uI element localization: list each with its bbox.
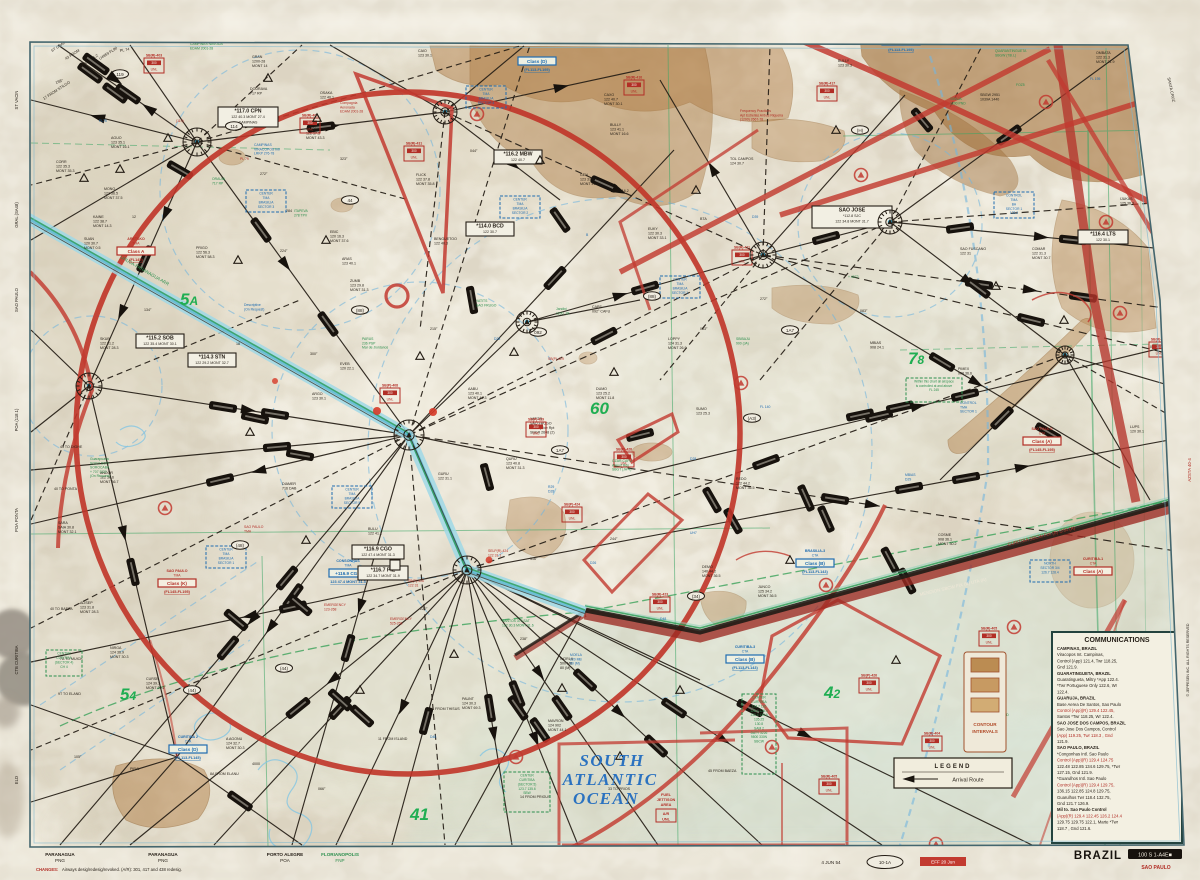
svg-text:123-268: 123-268 — [324, 607, 337, 611]
svg-text:D28: D28 — [548, 489, 554, 493]
svg-text:UNL: UNL — [411, 156, 418, 160]
svg-text:PAUNT: PAUNT — [462, 697, 475, 701]
svg-text:SAO PAULO: SAO PAULO — [1141, 865, 1170, 871]
svg-text:LUPS: LUPS — [1130, 425, 1140, 429]
svg-text:14 FROM THISUS: 14 FROM THISUS — [430, 707, 460, 711]
svg-text:MAVRON: MAVRON — [548, 719, 564, 723]
svg-text:AABU: AABU — [468, 387, 478, 391]
svg-text:UNL: UNL — [739, 260, 746, 264]
svg-text:123 30.1: 123 30.1 — [312, 397, 326, 401]
svg-text:EBIC: EBIC — [330, 230, 339, 234]
svg-text:QURU: QURU — [506, 457, 517, 461]
svg-text:MONT 36.5: MONT 36.5 — [758, 594, 777, 598]
svg-text:SB(R)-423: SB(R)-423 — [652, 593, 668, 597]
svg-text:122 40.3: 122 40.3 — [434, 242, 448, 246]
svg-text:123 47.4 MONT 31.3: 123 47.4 MONT 31.3 — [330, 580, 365, 584]
svg-text:300: 300 — [1156, 345, 1162, 349]
svg-text:114: 114 — [230, 124, 238, 129]
svg-text:UNL: UNL — [151, 68, 158, 72]
svg-text:FL 140: FL 140 — [760, 405, 771, 409]
svg-text:123.7 135.6: 123.7 135.6 — [518, 787, 536, 791]
svg-text:12: 12 — [132, 215, 136, 219]
svg-text:122 31.2: 122 31.2 — [100, 342, 114, 346]
svg-text:SAO JOSE: SAO JOSE — [839, 208, 866, 214]
svg-text:9800 330N: 9800 330N — [751, 735, 768, 739]
svg-text:215°: 215° — [430, 327, 438, 331]
svg-text:125 34.2: 125 34.2 — [758, 590, 772, 594]
svg-text:JETTISON: JETTISON — [657, 798, 676, 802]
svg-text:Class (B): Class (B) — [735, 657, 755, 662]
svg-text:Guarulhos Twr 118.4 132.75,: Guarulhos Twr 118.4 132.75, — [1057, 795, 1111, 800]
svg-text:UNL: UNL — [929, 746, 936, 750]
svg-text:MONO: MONO — [104, 187, 115, 191]
svg-text:123.7 126: 123.7 126 — [752, 704, 767, 708]
svg-text:122.48 122.85 134.6 129.75, *T: 122.48 122.85 134.6 129.75, *Twr — [1057, 764, 1121, 769]
svg-text:SUMO: SUMO — [696, 407, 707, 411]
svg-text:SECTOR 3: SECTOR 3 — [258, 205, 275, 209]
svg-text:123 25.3: 123 25.3 — [696, 412, 710, 416]
svg-text:CENTER: CENTER — [345, 488, 359, 492]
svg-text:124 32.7: 124 32.7 — [226, 742, 240, 746]
svg-text:MONT 30.3: MONT 30.3 — [226, 746, 245, 750]
svg-text:044°: 044° — [470, 149, 478, 153]
svg-text:124 39.1: 124 39.1 — [146, 682, 160, 686]
svg-text:(On Request): (On Request) — [244, 307, 264, 311]
svg-text:CAIO: CAIO — [418, 49, 427, 53]
svg-text:CENTER: CENTER — [259, 192, 273, 196]
svg-text:278 TPV: 278 TPV — [294, 213, 308, 217]
svg-text:FL 245: FL 245 — [929, 388, 939, 392]
svg-text:122 40.7: 122 40.7 — [511, 158, 525, 162]
svg-text:ST VACIN: ST VACIN — [14, 91, 19, 110]
svg-text:4 JUN 54: 4 JUN 54 — [821, 860, 841, 865]
svg-text:SBCW: SBCW — [754, 740, 765, 744]
svg-text:MONT 35.3: MONT 35.3 — [56, 169, 75, 173]
svg-text:PORTO ALEGRE: PORTO ALEGRE — [267, 852, 304, 857]
svg-text:UNL: UNL — [307, 128, 314, 132]
svg-text:MONT 43.3: MONT 43.3 — [306, 136, 325, 140]
svg-text:TMA: TMA — [517, 202, 525, 206]
svg-text:092: 092 — [534, 330, 542, 335]
svg-text:123.2: 123.2 — [1010, 211, 1018, 215]
svg-text:80 (M): 80 (M) — [560, 666, 570, 670]
svg-text:SB(R)-403: SB(R)-403 — [146, 54, 162, 58]
svg-text:MONT 14: MONT 14 — [252, 64, 268, 68]
svg-text:BULLY: BULLY — [610, 123, 622, 127]
svg-text:TMA: TMA — [677, 282, 685, 286]
svg-text:(SECTOR 5): (SECTOR 5) — [518, 782, 537, 786]
svg-text:TMA: TMA — [263, 196, 271, 200]
svg-text:122 31: 122 31 — [960, 252, 971, 256]
svg-text:MONT 14.3: MONT 14.3 — [93, 224, 112, 228]
svg-text:122 44.2: 122 44.2 — [736, 482, 750, 486]
svg-text:136.15 122.85 124.8 129.75,: 136.15 122.85 124.8 129.75, — [1057, 789, 1111, 794]
svg-text:300: 300 — [631, 83, 637, 87]
svg-text:(FL113-FL143): (FL113-FL143) — [802, 570, 828, 574]
svg-text:119: 119 — [116, 72, 124, 77]
svg-text:CENTER: CENTER — [479, 88, 493, 92]
svg-text:MONT 16.1: MONT 16.1 — [111, 145, 130, 149]
svg-text:POA (118.1): POA (118.1) — [14, 408, 19, 431]
svg-text:SBGT (JA-4): SBGT (JA-4) — [612, 468, 631, 472]
svg-text:CORR: CORR — [56, 160, 67, 164]
svg-text:116.2: 116.2 — [620, 189, 629, 193]
svg-text:122 34.7 MONT 31.9: 122 34.7 MONT 31.9 — [366, 574, 400, 578]
svg-text:PL 79: PL 79 — [240, 157, 249, 161]
svg-text:PNG: PNG — [55, 858, 65, 863]
svg-text:TMA: TMA — [244, 529, 252, 533]
svg-text:Gnd 121.7 126.9.: Gnd 121.7 126.9. — [1057, 801, 1089, 806]
svg-text:123 35.1: 123 35.1 — [111, 141, 125, 145]
svg-text:124 902: 124 902 — [548, 724, 561, 728]
svg-text:CTB CURITIBA: CTB CURITIBA — [14, 645, 19, 674]
svg-text:40 TO BAEZA: 40 TO BAEZA — [50, 607, 73, 611]
svg-text:MBIAS: MBIAS — [870, 341, 882, 345]
svg-text:Sao Jose Dos Campos, Control: Sao Jose Dos Campos, Control — [1057, 727, 1116, 732]
svg-text:Viracopos Int. Campinas,: Viracopos Int. Campinas, — [1057, 652, 1104, 657]
svg-text:UNL: UNL — [826, 789, 833, 793]
svg-text:TOL CAMPOS: TOL CAMPOS — [730, 157, 754, 161]
svg-text:122 41.1: 122 41.1 — [368, 532, 382, 536]
svg-text:244°: 244° — [610, 537, 618, 541]
svg-text:Control (App) 121.4, Twr 118.2: Control (App) 121.4, Twr 118.25, — [1057, 658, 1117, 663]
svg-text:11 FROM ISLAND: 11 FROM ISLAND — [378, 737, 408, 741]
svg-text:EDAM 2001-28: EDAM 2001-28 — [340, 110, 363, 114]
svg-text:MONT 26.9: MONT 26.9 — [668, 346, 687, 350]
svg-text:122 31: 122 31 — [408, 583, 418, 587]
svg-text:POA: POA — [280, 858, 291, 863]
svg-text:FNP: FNP — [335, 858, 344, 863]
svg-text:130.8: 130.8 — [755, 722, 763, 726]
svg-text:UNL: UNL — [631, 90, 638, 94]
svg-text:CH 4: CH 4 — [60, 665, 68, 669]
svg-text:D39: D39 — [752, 215, 758, 219]
svg-text:PIMEX: PIMEX — [958, 367, 970, 371]
svg-text:BRAZIL: BRAZIL — [1074, 850, 1122, 862]
svg-text:120 16.3: 120 16.3 — [330, 235, 344, 239]
svg-text:*115.2 SOB: *115.2 SOB — [146, 336, 174, 342]
svg-text:SECTOR 1: SECTOR 1 — [1006, 207, 1023, 211]
svg-text:SB(R)-411: SB(R)-411 — [734, 246, 750, 250]
svg-text:1200 PND: 1200 PND — [950, 101, 966, 105]
svg-text:083°: 083° — [700, 327, 708, 331]
svg-text:9T TO ELAND: 9T TO ELAND — [58, 692, 81, 696]
svg-text:Control (App)(R) 129.4 122.45,: Control (App)(R) 129.4 122.45, — [1057, 708, 1115, 713]
svg-text:CONSONHAS: CONSONHAS — [336, 559, 360, 563]
svg-text:300°: 300° — [310, 352, 318, 356]
svg-text:BRASILIA: BRASILIA — [479, 96, 495, 100]
svg-text:MONT 44.1: MONT 44.1 — [548, 728, 567, 732]
svg-text:(A3): (A3) — [748, 416, 757, 421]
svg-text:PRIGO: PRIGO — [196, 246, 208, 250]
svg-text:SKUB: SKUB — [100, 337, 110, 341]
svg-text:122 35.3: 122 35.3 — [56, 165, 70, 169]
svg-text:120 30.1: 120 30.1 — [1130, 430, 1144, 434]
svg-text:123 36.5: 123 36.5 — [104, 192, 118, 196]
svg-text:*Congonhas Intl. Sao Paulo: *Congonhas Intl. Sao Paulo — [1057, 751, 1109, 756]
svg-text:Class (D): Class (D) — [527, 59, 547, 64]
svg-text:300: 300 — [986, 634, 992, 638]
svg-text:SECTOR 4: SECTOR 4 — [478, 101, 495, 105]
svg-text:124 30.3: 124 30.3 — [462, 702, 476, 706]
svg-text:UNL: UNL — [657, 607, 664, 611]
svg-text:135.25: 135.25 — [754, 718, 764, 722]
svg-text:123 30.3: 123 30.3 — [838, 64, 852, 68]
svg-text:Class (A): Class (A) — [1083, 569, 1103, 574]
svg-text:300: 300 — [866, 681, 872, 685]
svg-text:122 37.8: 122 37.8 — [416, 178, 430, 182]
svg-text:BH: BH — [1012, 202, 1017, 206]
svg-text:908 36.6: 908 36.6 — [958, 372, 972, 376]
svg-text:CENTER: CENTER — [752, 696, 766, 700]
svg-text:123 40.1: 123 40.1 — [342, 262, 356, 266]
svg-text:122 30.7: 122 30.7 — [483, 230, 497, 234]
svg-text:UNL: UNL — [533, 432, 540, 436]
svg-text:123 40.1: 123 40.1 — [468, 392, 482, 396]
svg-text:(1200) 2667-78: (1200) 2667-78 — [740, 118, 763, 122]
svg-text:(FL145): (FL145) — [129, 258, 143, 262]
svg-text:60: 60 — [590, 399, 609, 418]
svg-text:MONT 41.3: MONT 41.3 — [468, 396, 487, 400]
svg-text:SAM 2: SAM 2 — [754, 726, 764, 730]
svg-text:IJUKAS: IJUKAS — [1120, 197, 1133, 201]
svg-text:MONT 28.3: MONT 28.3 — [80, 610, 99, 614]
svg-text:10-1A: 10-1A — [879, 860, 892, 865]
svg-text:272°: 272° — [260, 172, 268, 176]
svg-text:ALISEP: ALISEP — [80, 601, 93, 605]
svg-text:105°: 105° — [74, 755, 82, 759]
svg-text:(34): (34) — [692, 594, 701, 599]
svg-text:SAO PAULO, BRAZIL: SAO PAULO, BRAZIL — [1057, 745, 1100, 750]
svg-text:SECTOR 1: SECTOR 1 — [218, 561, 235, 565]
svg-text:SB(R)-431: SB(R)-431 — [406, 142, 422, 146]
svg-text:FOZ5: FOZ5 — [1016, 83, 1025, 87]
svg-text:SAO JOSE DOS CAMPOS, BRAZIL: SAO JOSE DOS CAMPOS, BRAZIL — [1057, 720, 1126, 725]
svg-text:717 RP: 717 RP — [250, 92, 263, 96]
svg-text:300: 300 — [533, 425, 539, 429]
svg-text:A/R: A/R — [663, 812, 670, 816]
svg-text:122 30.1: 122 30.1 — [1096, 238, 1110, 242]
svg-text:OSAKA: OSAKA — [320, 91, 333, 95]
svg-text:716 DAB: 716 DAB — [282, 487, 297, 491]
svg-text:122 35.4 MONT 30.1: 122 35.4 MONT 30.1 — [143, 342, 177, 346]
svg-text:D28: D28 — [690, 457, 696, 461]
svg-text:JUNCO: JUNCO — [758, 585, 771, 589]
svg-text:(H): (H) — [857, 128, 864, 133]
svg-text:(FL113-FL145): (FL113-FL145) — [175, 756, 201, 760]
svg-text:BULLY: BULLY — [838, 59, 850, 63]
svg-text:132.4 135.6: 132.4 135.6 — [750, 713, 768, 717]
svg-text:COMMUNICATIONS: COMMUNICATIONS — [1084, 637, 1150, 644]
svg-text:122 40.7: 122 40.7 — [604, 98, 618, 102]
svg-text:POA PONTA: POA PONTA — [14, 508, 19, 532]
svg-text:Class A: Class A — [128, 249, 145, 254]
svg-text:CENTER: CENTER — [673, 278, 687, 282]
svg-text:CENTER: CENTER — [219, 548, 233, 552]
svg-text:CENTER: CENTER — [57, 652, 71, 656]
svg-text:UNL: UNL — [986, 641, 993, 645]
svg-text:SUAN: SUAN — [84, 237, 94, 241]
svg-text:+116.9 CGO: +116.9 CGO — [335, 571, 361, 576]
svg-text:AZSTA 40-4: AZSTA 40-4 — [1187, 458, 1192, 482]
svg-text:127.15, Gnd 121.9.: 127.15, Gnd 121.9. — [1057, 770, 1093, 775]
svg-text:SAO PAULO: SAO PAULO — [166, 569, 187, 573]
svg-text:44: 44 — [347, 198, 353, 203]
svg-text:MONT 30.2: MONT 30.2 — [938, 542, 957, 546]
svg-text:TMA: TMA — [173, 574, 181, 578]
svg-text:300: 300 — [657, 600, 663, 604]
svg-text:MONT 29.2: MONT 29.2 — [146, 686, 165, 690]
svg-text:Mar de Jiordanos: Mar de Jiordanos — [362, 346, 389, 350]
svg-text:118.7 , Gnd 121.6.: 118.7 , Gnd 121.6. — [1057, 826, 1091, 831]
svg-text:A AGONU: A AGONU — [226, 737, 243, 741]
svg-text:TMA: TMA — [344, 564, 352, 568]
svg-text:122 40.1: 122 40.1 — [320, 96, 334, 100]
svg-text:100 S 1-A4E■: 100 S 1-A4E■ — [1138, 853, 1172, 859]
svg-text:ELD: ELD — [14, 776, 19, 784]
svg-text:1200-28: 1200-28 — [252, 60, 265, 64]
svg-text:MONT 41.5: MONT 41.5 — [580, 182, 599, 186]
svg-text:(FL145-FL195): (FL145-FL195) — [164, 590, 190, 594]
svg-text:123 40.8: 123 40.8 — [506, 462, 520, 466]
svg-text:UNL: UNL — [569, 517, 576, 521]
svg-text:SB(P)-428: SB(P)-428 — [616, 448, 632, 452]
svg-text:*Twr Portuguese Only 122.6, Wr: *Twr Portuguese Only 122.6, Wr — [1057, 683, 1118, 688]
svg-text:122 30.3: 122 30.3 — [648, 232, 662, 236]
svg-text:(App) 119.25, Twr 118.3 , Gnd: (App) 119.25, Twr 118.3 , Gnd — [1057, 733, 1113, 738]
svg-text:UNL: UNL — [662, 818, 670, 822]
svg-text:D26: D26 — [590, 561, 596, 565]
svg-text:MONT 69.3: MONT 69.3 — [462, 706, 481, 710]
svg-text:MONT 31.9: MONT 31.9 — [1096, 60, 1115, 64]
svg-text:(44): (44) — [280, 666, 289, 671]
svg-text:122 31.3: 122 31.3 — [1096, 56, 1110, 60]
svg-text:122 34.8 MONT 31.7: 122 34.8 MONT 31.7 — [835, 219, 869, 223]
svg-text:8A FROM ELANU: 8A FROM ELANU — [210, 772, 239, 776]
svg-text:ARAS: ARAS — [342, 257, 352, 261]
svg-text:SB(P)-426: SB(P)-426 — [861, 674, 877, 678]
svg-text:PARANAGUA: PARANAGUA — [45, 852, 75, 857]
svg-text:FUEL: FUEL — [661, 793, 672, 797]
svg-text:Base Aerea De Santos, Sao Paul: Base Aerea De Santos, Sao Paulo — [1057, 702, 1122, 707]
svg-text:MONT 31.3: MONT 31.3 — [506, 466, 525, 470]
svg-text:SECTOR 2: SECTOR 2 — [512, 211, 529, 215]
svg-text:(SECTOR 4): (SECTOR 4) — [55, 660, 74, 664]
svg-text:908 36.1: 908 36.1 — [938, 538, 952, 542]
svg-text:122 47.4 MONT 31.3: 122 47.4 MONT 31.3 — [361, 553, 395, 557]
svg-text:BRASILIA-3: BRASILIA-3 — [805, 549, 825, 553]
svg-text:FLICK: FLICK — [416, 173, 427, 177]
svg-text:REDO: REDO — [736, 477, 747, 481]
svg-text:DIAMER: DIAMER — [282, 482, 296, 486]
svg-text:UNL: UNL — [1156, 352, 1163, 356]
svg-text:CHANGES:: CHANGES: — [36, 867, 58, 872]
svg-text:CTA: CTA — [812, 554, 819, 558]
svg-text:908 24.1: 908 24.1 — [870, 346, 884, 350]
svg-text:CURITIBA: CURITIBA — [519, 778, 535, 782]
svg-text:(On Request): (On Request) — [90, 474, 110, 478]
svg-text:SB(R)-404: SB(R)-404 — [924, 732, 940, 736]
svg-text:MONT 0.5: MONT 0.5 — [84, 246, 101, 250]
svg-text:Airways desig/redesig/revoked.: Airways desig/redesig/revoked. (A/R): 30… — [62, 867, 182, 872]
svg-text:129.75 129.75 122.1, Marte *Tw: 129.75 129.75 122.1, Marte *Twr — [1057, 820, 1119, 825]
svg-text:45 FROM BAEZA: 45 FROM BAEZA — [708, 769, 737, 773]
svg-text:41: 41 — [409, 805, 429, 824]
svg-text:MONT 30.1: MONT 30.1 — [604, 102, 623, 106]
svg-text:123 37.4: 123 37.4 — [580, 178, 594, 182]
svg-text:*117.0 CPN: *117.0 CPN — [234, 109, 261, 115]
svg-text:CENTER: CENTER — [520, 774, 534, 778]
svg-text:SB(P)-408: SB(P)-408 — [382, 384, 398, 388]
svg-text:4000: 4000 — [252, 762, 260, 766]
svg-text:*116.4 LTS: *116.4 LTS — [1090, 232, 1116, 238]
svg-text:PIRAI: PIRAI — [130, 767, 139, 771]
svg-text:*114.3 STN: *114.3 STN — [199, 355, 226, 361]
svg-text:MONT 33.1: MONT 33.1 — [648, 236, 667, 240]
svg-text:BRASILIA: BRASILIA — [513, 206, 529, 210]
svg-text:LOPPY: LOPPY — [668, 337, 681, 341]
svg-text:© JEPPESEN INC. ALL RIGHTS RES: © JEPPESEN INC. ALL RIGHTS RESERVED — [1186, 623, 1190, 696]
svg-text:EVEB: EVEB — [340, 362, 350, 366]
svg-text:300: 300 — [387, 391, 393, 395]
svg-text:ZUMB: ZUMB — [350, 279, 361, 283]
svg-text:SBW: SBW — [523, 791, 531, 795]
svg-text:14 FROM PRIGUS: 14 FROM PRIGUS — [520, 795, 551, 799]
svg-text:1039A 1440: 1039A 1440 — [980, 98, 999, 102]
svg-text:717 RP: 717 RP — [212, 181, 224, 185]
svg-text:DOURAVA: DOURAVA — [250, 87, 268, 91]
svg-text:TMA: TMA — [1011, 198, 1019, 202]
svg-text:316°: 316° — [530, 557, 538, 561]
svg-text:Santos *Twr 118.25, Wr 122.4.: Santos *Twr 118.25, Wr 122.4. — [1057, 714, 1114, 719]
svg-text:D29: D29 — [905, 477, 911, 481]
svg-text:UH7: UH7 — [690, 531, 697, 535]
svg-text:272°: 272° — [760, 297, 768, 301]
svg-text:120 30.7: 120 30.7 — [84, 242, 98, 246]
svg-text:TMA: TMA — [223, 552, 231, 556]
svg-text:Mil to. Sao Paulo Control: Mil to. Sao Paulo Control — [1057, 807, 1107, 812]
svg-text:GURU: GURU — [438, 472, 449, 476]
svg-text:EFF 20 Jun: EFF 20 Jun — [931, 860, 955, 865]
svg-text:SECTOR 1: SECTOR 1 — [960, 410, 977, 414]
svg-text:GUARUJA, BRAZIL: GUARUJA, BRAZIL — [1057, 696, 1096, 701]
svg-text:SB(R)-405: SB(R)-405 — [821, 775, 837, 779]
svg-text:SBGW (78I.L): SBGW (78I.L) — [995, 53, 1016, 57]
svg-text:300: 300 — [151, 61, 157, 65]
svg-text:D48: D48 — [660, 617, 666, 621]
svg-text:Class (K): Class (K) — [167, 581, 187, 586]
svg-text:MONT 30.7: MONT 30.7 — [1032, 256, 1051, 260]
svg-text:GRAL (SA48): GRAL (SA48) — [14, 202, 19, 228]
svg-text:(FL145-FL195): (FL145-FL195) — [1029, 448, 1055, 452]
svg-text:Guaratingueta, Miltry *App 122: Guaratingueta, Miltry *App 122.4. — [1057, 677, 1119, 682]
svg-text:MONT 30.3: MONT 30.3 — [110, 655, 129, 659]
svg-text:CTA: CTA — [1090, 562, 1097, 566]
svg-text:OCEAN: OCEAN — [573, 789, 639, 808]
svg-text:122 31.3: 122 31.3 — [1032, 252, 1046, 256]
svg-text:TMA: TMA — [349, 492, 357, 496]
svg-text:*Guarulhos Intl. Sao Paulo: *Guarulhos Intl. Sao Paulo — [1057, 776, 1107, 781]
svg-text:SOUTH: SOUTH — [579, 751, 644, 770]
svg-text:123 30.1: 123 30.1 — [418, 54, 432, 58]
svg-text:SB(R)-405: SB(R)-405 — [981, 627, 997, 631]
svg-text:122 30.3 MONT 31.6: 122 30.3 MONT 31.6 — [502, 623, 534, 627]
svg-text:UNL: UNL — [387, 398, 394, 402]
svg-text:+ 4072: + 4072 — [848, 275, 859, 279]
svg-text:CTA: CTA — [185, 740, 192, 744]
svg-text:GEN: GEN — [580, 173, 588, 177]
svg-text:MONT 36.5: MONT 36.5 — [736, 486, 755, 490]
